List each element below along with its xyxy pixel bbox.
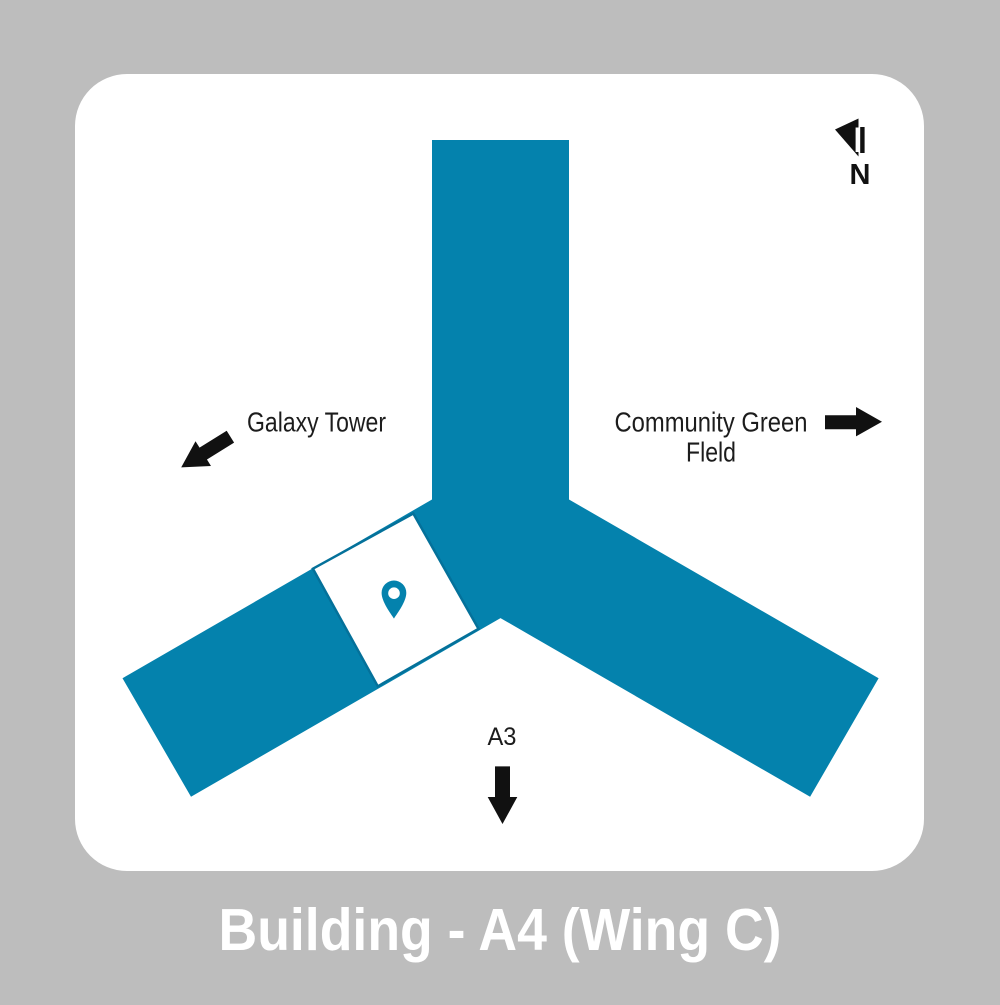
svg-text:A3: A3 (488, 723, 517, 751)
svg-text:Building - A4 (Wing C): Building - A4 (Wing C) (219, 897, 782, 963)
svg-text:Community Green: Community Green (615, 407, 808, 438)
svg-text:Fleld: Fleld (686, 437, 736, 468)
svg-text:N: N (850, 159, 871, 191)
svg-text:Galaxy Tower: Galaxy Tower (247, 407, 386, 438)
